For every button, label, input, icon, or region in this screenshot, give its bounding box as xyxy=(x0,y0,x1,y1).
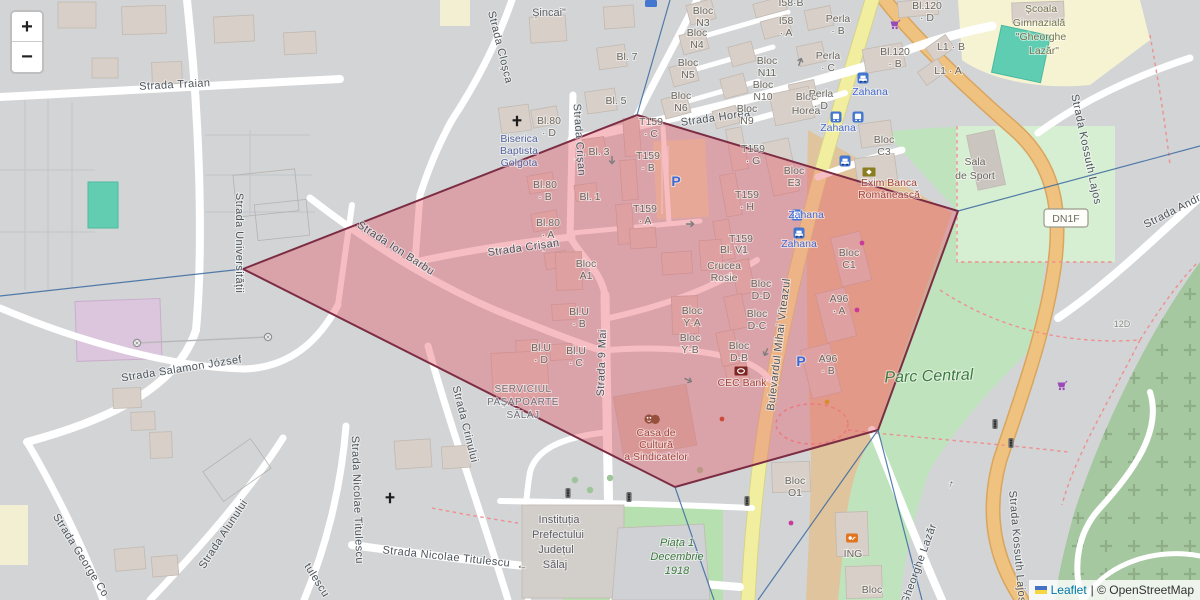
parking-label: P xyxy=(671,173,680,189)
bloc-label: Bloc xyxy=(747,308,767,320)
bloc-label: Bl. 1 xyxy=(579,191,600,203)
bloc-label: Bloc xyxy=(687,27,707,39)
bloc-label: · D xyxy=(534,354,548,366)
bloc-label: · D xyxy=(814,100,828,112)
map-canvas[interactable]: Strada TraianStrada UniversitățiiStrada … xyxy=(0,0,1200,600)
cec-icon xyxy=(735,367,748,376)
bloc-label: · B xyxy=(572,318,585,330)
bloc-label: Bloc xyxy=(751,278,771,290)
poi-label-sincai: Șincai" xyxy=(532,7,566,19)
light-icon xyxy=(744,496,749,506)
street-label-9-mai: Strada 9 Mai xyxy=(595,329,609,397)
bloc-label: Bloc xyxy=(576,258,596,270)
bloc-label: Bloc xyxy=(785,475,805,487)
bloc-label: Bl.80 xyxy=(536,217,560,229)
bloc-label: · B xyxy=(888,58,901,70)
road-ref-dn1f: DN1F xyxy=(1052,213,1079,225)
bloc-label: · A xyxy=(833,305,846,317)
zoom-out-button[interactable]: − xyxy=(12,42,42,72)
light-icon xyxy=(1008,438,1013,448)
map-svg: Strada TraianStrada UniversitățiiStrada … xyxy=(0,0,1200,600)
bloc-label: Perla xyxy=(816,50,841,62)
poi-blue-icon xyxy=(645,0,657,7)
poi-label-serviciul-pasapoarte: PAȘAPOARTE xyxy=(487,397,559,408)
poi-label-biserica: Golgota xyxy=(501,157,538,169)
bloc-label: · B xyxy=(821,365,834,377)
bloc-label: · D xyxy=(920,12,934,24)
bloc-label: Bloc xyxy=(678,57,698,69)
bloc-label: · C xyxy=(569,357,583,369)
poi-label-scoala-gheorghe-lazar: "Gheorghe xyxy=(1016,31,1067,43)
poi-label-casa-de-cultura: Casa de xyxy=(636,427,675,439)
car-icon xyxy=(858,73,869,84)
bloc-label: E3 xyxy=(788,177,801,189)
zoom-control: + − xyxy=(10,10,44,74)
bloc-label: Bl.120 xyxy=(880,46,910,58)
bloc-label: N4 xyxy=(690,39,704,51)
bloc-label: Bloc xyxy=(757,55,777,67)
poi-label-scoala-gheorghe-lazar: Școala xyxy=(1025,3,1057,15)
poi-label-ing: ING xyxy=(844,548,863,560)
bloc-label: Bl.U xyxy=(569,306,589,318)
bloc-label: C3 xyxy=(877,146,891,158)
poi-label-piata-1-decembrie: Decembrie xyxy=(650,551,703,563)
light-icon xyxy=(565,488,570,498)
light-icon xyxy=(626,492,631,502)
bloc-label: Bl. 3 xyxy=(588,146,609,158)
bloc-label: · C xyxy=(821,62,835,74)
parking-label: P xyxy=(796,353,805,369)
bloc-label: Bl. 5 xyxy=(605,95,626,107)
zoom-in-button[interactable]: + xyxy=(12,12,42,42)
bloc-label: Bloc xyxy=(693,5,713,17)
bloc-label: L1 · A xyxy=(934,65,961,77)
theater-icon xyxy=(644,414,659,424)
bloc-label: I58 xyxy=(779,15,794,27)
bloc-label: T159 xyxy=(741,143,765,155)
bloc-label: · H xyxy=(740,201,754,213)
bloc-label: N5 xyxy=(681,69,695,81)
bloc-label: · G xyxy=(746,155,761,167)
bloc-label: Bloc xyxy=(753,79,773,91)
poi-label-piata-1-decembrie: 1918 xyxy=(665,565,690,577)
attribution-bar: Leaflet | © OpenStreetMap xyxy=(1029,580,1200,600)
bloc-label: C1 xyxy=(842,259,856,271)
bloc-label: Bl.U xyxy=(531,342,551,354)
bloc-label: Perla xyxy=(826,13,851,25)
bloc-label: · B xyxy=(641,162,654,174)
bloc-label: Y·B xyxy=(681,344,699,356)
poi-label-biserica: Biserica xyxy=(500,133,538,145)
bloc-label: Bl.U xyxy=(566,345,586,357)
bloc-label: A96 xyxy=(830,293,849,305)
bloc-label: T159 xyxy=(735,189,759,201)
light-icon xyxy=(992,419,997,429)
bloc-label: A1 xyxy=(580,270,593,282)
bloc-label: · C xyxy=(644,128,658,140)
bloc-label: N6 xyxy=(674,102,688,114)
bus-icon xyxy=(853,112,864,123)
poi-label-parc-central: Parc Central xyxy=(884,366,974,386)
poi-label-sala-de-sport: Sala xyxy=(964,156,985,168)
dot-m-icon xyxy=(855,308,860,313)
bloc-label: Y·A xyxy=(683,317,701,329)
bloc-label: O1 xyxy=(788,487,802,499)
bloc-label: Bl.80 xyxy=(533,179,557,191)
poi-label-crucea-rosie: Crucea xyxy=(707,260,741,272)
bloc-label: D·B xyxy=(730,352,748,364)
dot-m-icon xyxy=(860,241,865,246)
bloc-label: N10 xyxy=(753,91,772,103)
leaflet-link[interactable]: Leaflet xyxy=(1051,580,1087,600)
poi-label-piata-1-decembrie: Piața 1 xyxy=(660,537,694,549)
ukraine-flag-icon xyxy=(1035,586,1047,594)
osm-attribution: | © OpenStreetMap xyxy=(1091,580,1194,600)
bloc-label: Bloc xyxy=(839,247,859,259)
dot-o-icon xyxy=(825,400,830,405)
bloc-label: T159 xyxy=(636,150,660,162)
teal-building xyxy=(88,182,118,228)
bloc-label: Bloc xyxy=(729,340,749,352)
poi-label-cec-bank: CEC Bank xyxy=(717,377,767,389)
street-label-universitatii: Strada Universității xyxy=(233,193,245,293)
dot-r-icon xyxy=(720,417,725,422)
poi-label-prefectura: Prefectului xyxy=(532,529,584,541)
poi-label-prefectura: Instituția xyxy=(539,514,581,526)
bloc-label: · A xyxy=(639,215,652,227)
bloc-label: Bl.120 xyxy=(912,0,942,12)
bloc-label: Bloc xyxy=(671,90,691,102)
gate-icon xyxy=(264,333,271,340)
exim-icon xyxy=(863,168,876,177)
bloc-label: Bl.80 xyxy=(537,115,561,127)
bus-icon xyxy=(831,112,842,123)
bloc-label: Perla xyxy=(809,88,834,100)
bloc-label: L1 · B xyxy=(937,41,965,53)
dot-m-icon xyxy=(789,521,794,526)
bloc-label: · B xyxy=(538,191,551,203)
poi-label-crucea-rosie: Rosie xyxy=(711,272,738,284)
poi-label-exim-banca: Exim Banca xyxy=(861,177,917,189)
gate-icon xyxy=(133,339,140,346)
poi-label-prefectura: Județul xyxy=(538,544,573,556)
bloc-label: N9 xyxy=(740,115,754,127)
poi-label-exim-banca: Românească xyxy=(858,189,920,201)
bloc-label: T159 xyxy=(639,116,663,128)
road-ref-12d: 12D xyxy=(1114,319,1131,329)
poi-label-biserica: Baptista xyxy=(500,145,538,157)
oneway-arrow-label: ← xyxy=(516,559,529,572)
poi-label-zahana: Zahana xyxy=(852,86,888,98)
ing-icon xyxy=(846,534,858,543)
bloc-label: T159 xyxy=(633,203,657,215)
poi-label-prefectura: Sălaj xyxy=(543,559,567,571)
car-icon xyxy=(840,156,851,167)
car-icon xyxy=(794,228,805,239)
bloc-label: Bloc xyxy=(680,332,700,344)
bloc-label: Bl. V1 xyxy=(720,244,748,256)
poi-label-serviciul-pasapoarte: SERVICIUL xyxy=(494,384,551,395)
poi-label-serviciul-pasapoarte: SĂLAJ xyxy=(506,408,539,421)
bloc-label: Bloc xyxy=(862,584,882,596)
bloc-label: D·D xyxy=(752,290,771,302)
poi-label-scoala-gheorghe-lazar: Gimnazială xyxy=(1013,17,1066,29)
poi-label-casa-de-cultura: Cultură xyxy=(639,439,673,451)
bloc-label: Bloc xyxy=(737,103,757,115)
bloc-label: · A xyxy=(780,27,793,39)
poi-label-zahana: Zahana xyxy=(820,122,856,134)
bloc-label: D·C xyxy=(748,320,767,332)
bloc-label: Bloc xyxy=(784,165,804,177)
poi-label-casa-de-cultura: a Sindicatelor xyxy=(624,451,688,463)
poi-label-sala-de-sport: de Sport xyxy=(955,170,995,182)
bloc-label: N11 xyxy=(758,67,777,79)
bloc-label: · A xyxy=(542,229,555,241)
poi-label-scoala-gheorghe-lazar: Lazăr" xyxy=(1029,45,1059,57)
bloc-label: A96 xyxy=(819,353,838,365)
bloc-label: · B xyxy=(831,25,844,37)
bloc-label: Bl. 7 xyxy=(616,51,637,63)
bloc-label: I58·B xyxy=(778,0,803,9)
bloc-label: Bloc xyxy=(874,134,894,146)
poi-label-zahana: Zahana xyxy=(781,238,817,250)
bloc-label: · D xyxy=(542,127,556,139)
bloc-label: Bloc xyxy=(682,305,702,317)
poi-label-zahana: Zahana xyxy=(788,209,824,221)
